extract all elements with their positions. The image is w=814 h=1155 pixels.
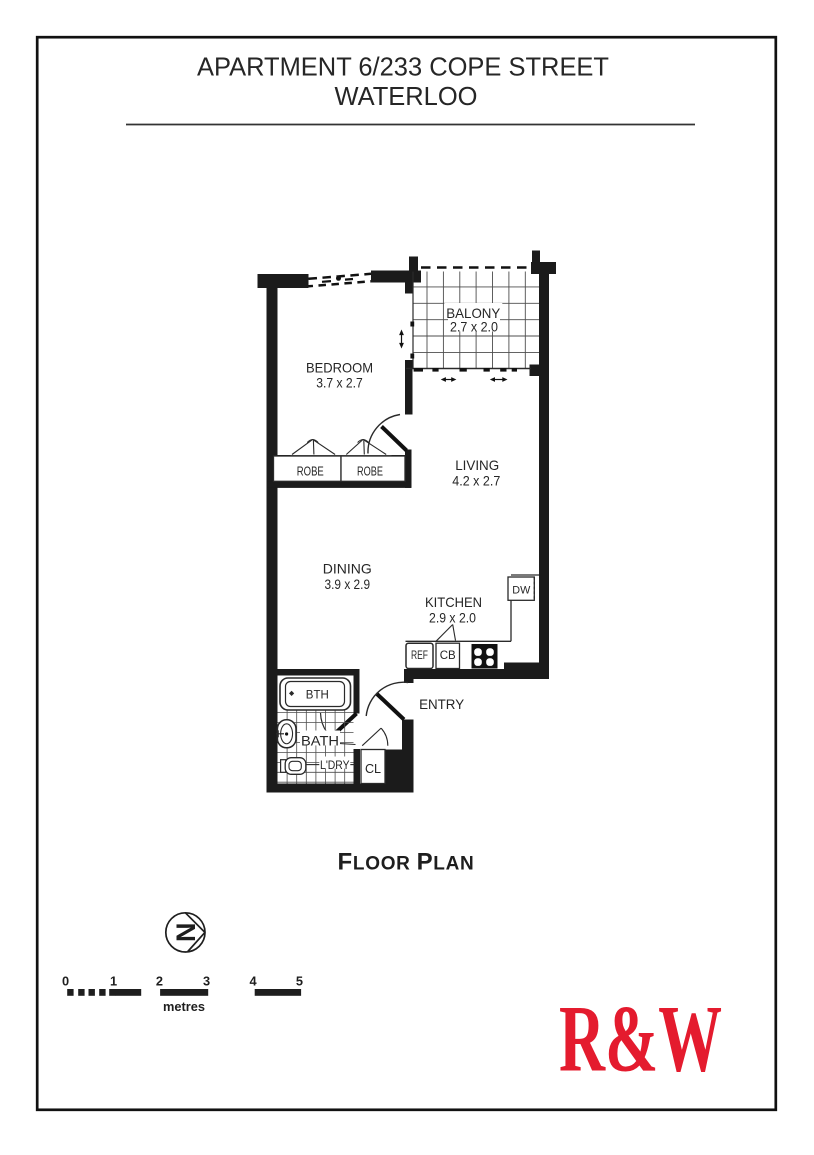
svg-text:DINING: DINING [323, 560, 372, 576]
svg-text:REF: REF [411, 650, 428, 662]
svg-text:WATERLOO: WATERLOO [335, 81, 478, 111]
svg-text:CL: CL [365, 762, 381, 776]
svg-text:KITCHEN: KITCHEN [425, 594, 482, 610]
svg-text:N: N [170, 923, 200, 943]
svg-text:ROBE: ROBE [357, 465, 383, 479]
svg-text:DW: DW [512, 585, 531, 597]
svg-text:R&W: R&W [559, 986, 722, 1092]
svg-text:metres: metres [163, 999, 205, 1014]
svg-text:3.9 x 2.9: 3.9 x 2.9 [325, 577, 371, 592]
svg-text:BTH: BTH [306, 689, 329, 701]
svg-text:L'DRY: L'DRY [320, 758, 350, 772]
svg-text:3: 3 [203, 973, 210, 988]
svg-text:BEDROOM: BEDROOM [306, 360, 373, 376]
svg-text:APARTMENT 6/233 COPE STREET: APARTMENT 6/233 COPE STREET [197, 52, 609, 82]
svg-text:3.7 x 2.7: 3.7 x 2.7 [316, 376, 363, 391]
svg-text:2: 2 [156, 973, 163, 988]
svg-text:2.7 x 2.0: 2.7 x 2.0 [450, 320, 498, 335]
svg-text:4: 4 [249, 973, 257, 988]
svg-text:5: 5 [296, 973, 303, 988]
svg-text:0: 0 [62, 973, 69, 988]
svg-text:LIVING: LIVING [455, 457, 499, 473]
svg-text:1: 1 [110, 973, 117, 988]
svg-text:ROBE: ROBE [297, 465, 324, 479]
svg-text:4.2 x 2.7: 4.2 x 2.7 [452, 474, 500, 489]
svg-text:BATH: BATH [301, 733, 339, 749]
svg-text:CB: CB [440, 650, 456, 662]
svg-text:2.9 x 2.0: 2.9 x 2.0 [429, 611, 476, 626]
svg-text:ENTRY: ENTRY [419, 696, 464, 712]
svg-text:FLOOR PLAN: FLOOR PLAN [338, 849, 475, 876]
